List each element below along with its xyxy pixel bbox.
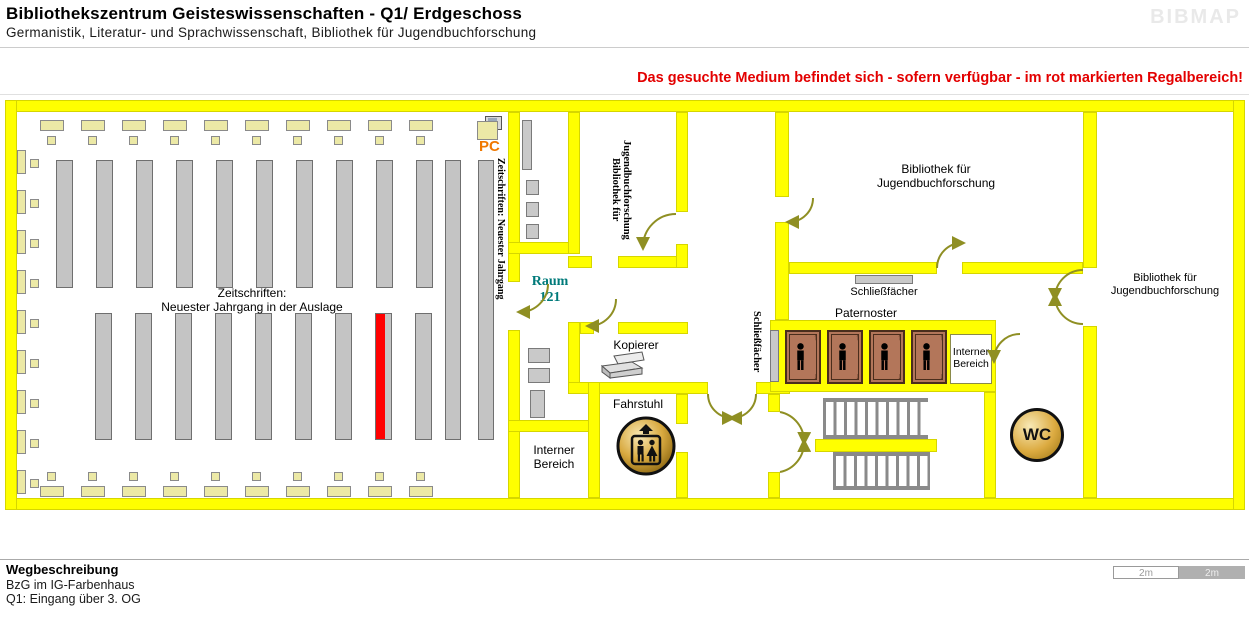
chair bbox=[30, 319, 39, 328]
interner-bereich-right-label: Interner Bereich bbox=[951, 346, 991, 370]
table bbox=[17, 310, 26, 334]
wall bbox=[789, 262, 937, 274]
locker bbox=[530, 390, 545, 418]
chair bbox=[88, 472, 97, 481]
label-line: Interner bbox=[953, 346, 989, 358]
bookshelf bbox=[56, 160, 73, 288]
table bbox=[17, 390, 26, 414]
down-arrow-icon: ↓ bbox=[856, 372, 861, 381]
bookshelf bbox=[215, 313, 232, 440]
wall-shelf bbox=[526, 202, 539, 217]
chair bbox=[334, 136, 343, 145]
schliessfaecher-label: Schließfächer bbox=[844, 286, 924, 299]
table bbox=[368, 486, 392, 497]
locker bbox=[528, 368, 550, 383]
table bbox=[17, 350, 26, 374]
wall bbox=[5, 100, 1245, 112]
table bbox=[122, 486, 146, 497]
table bbox=[17, 430, 26, 454]
chair bbox=[30, 399, 39, 408]
chair bbox=[129, 136, 138, 145]
table bbox=[286, 120, 310, 131]
footer-line-2: Q1: Eingang über 3. OG bbox=[6, 592, 141, 606]
room-jugendbuch-right-label: Bibliothek für Jugendbuchforschung bbox=[1100, 272, 1230, 298]
bookshelf bbox=[175, 313, 192, 440]
down-arrow-icon: ↓ bbox=[898, 372, 903, 381]
wall bbox=[768, 394, 780, 412]
stairs-landing bbox=[815, 439, 937, 452]
wc-label: WC bbox=[1023, 425, 1051, 445]
footer-divider bbox=[0, 559, 1249, 560]
door-arc bbox=[1055, 270, 1083, 298]
wall bbox=[676, 452, 688, 498]
wall-shelf bbox=[522, 120, 532, 170]
highlighted-shelf-marker bbox=[376, 314, 385, 439]
table bbox=[327, 486, 351, 497]
chair bbox=[30, 279, 39, 288]
person-icon bbox=[794, 337, 807, 377]
chair bbox=[170, 136, 179, 145]
wall bbox=[5, 100, 17, 510]
table bbox=[17, 270, 26, 294]
down-arrow-icon: ↓ bbox=[940, 372, 945, 381]
wall bbox=[676, 112, 688, 212]
label-line: Bereich bbox=[534, 457, 575, 471]
table bbox=[17, 470, 26, 494]
bookshelf bbox=[216, 160, 233, 288]
wall bbox=[1083, 326, 1097, 498]
schliessfaecher-vertical-label: Schließfächer bbox=[751, 296, 767, 388]
chair bbox=[30, 479, 39, 488]
wall bbox=[984, 392, 996, 498]
locker bbox=[528, 348, 550, 363]
chair bbox=[211, 472, 220, 481]
chair bbox=[375, 472, 384, 481]
copier-icon bbox=[598, 350, 646, 380]
floor-plan: Zeitschriften: Neuester Jahrgang in der … bbox=[0, 0, 1249, 618]
wall bbox=[568, 256, 592, 268]
chair bbox=[170, 472, 179, 481]
wc-icon: WC bbox=[1010, 408, 1064, 462]
pc-icon bbox=[477, 116, 503, 140]
bookshelf bbox=[478, 160, 494, 440]
room-jugendbuch-vertical-label: Bibliothek für Jugendbuchforschung bbox=[610, 120, 648, 260]
bookshelf bbox=[135, 313, 152, 440]
bookshelf bbox=[415, 313, 432, 440]
bookshelf bbox=[336, 160, 353, 288]
wall bbox=[618, 322, 688, 334]
chair bbox=[252, 472, 261, 481]
door-arc bbox=[780, 442, 804, 472]
table bbox=[17, 190, 26, 214]
schliessfaecher-lockers bbox=[855, 275, 913, 284]
paternoster-cabin: ↑↓ bbox=[785, 330, 821, 384]
elevator-icon bbox=[615, 415, 677, 477]
label-line: Jugendbuchforschung bbox=[1111, 285, 1219, 297]
bookshelf bbox=[255, 313, 272, 440]
chair bbox=[88, 136, 97, 145]
bookshelf bbox=[95, 313, 112, 440]
person-icon bbox=[878, 337, 891, 377]
up-arrow-icon: ↑ bbox=[898, 333, 903, 342]
label-line: Raum bbox=[532, 274, 569, 289]
table bbox=[327, 120, 351, 131]
scale-segment-light: 2m bbox=[1113, 566, 1179, 579]
wall bbox=[580, 322, 594, 334]
down-arrow-icon: ↓ bbox=[814, 372, 819, 381]
chair bbox=[30, 199, 39, 208]
note-line2: Neuester Jahrgang in der Auslage bbox=[161, 300, 342, 314]
label-line: 121 bbox=[540, 290, 561, 305]
wall bbox=[676, 244, 688, 268]
chair bbox=[129, 472, 138, 481]
chair bbox=[293, 136, 302, 145]
wall bbox=[568, 112, 580, 254]
note-line1: Zeitschriften: bbox=[218, 286, 287, 300]
label-line: Bibliothek für bbox=[1133, 272, 1197, 284]
chair bbox=[416, 136, 425, 145]
fahrstuhl-label: Fahrstuhl bbox=[596, 397, 680, 411]
paternoster-cabin: ↑↓ bbox=[911, 330, 947, 384]
label-line: Jugendbuchforschung bbox=[877, 176, 995, 190]
bookshelf bbox=[376, 160, 393, 288]
label-line: Interner bbox=[533, 443, 574, 457]
chair bbox=[211, 136, 220, 145]
bookshelf bbox=[136, 160, 153, 288]
table bbox=[409, 120, 433, 131]
door-arc bbox=[732, 394, 756, 418]
table bbox=[204, 486, 228, 497]
table bbox=[286, 486, 310, 497]
stairs-lower-flight bbox=[833, 452, 930, 490]
door-arc bbox=[994, 334, 1020, 360]
chair bbox=[293, 472, 302, 481]
up-arrow-icon: ↑ bbox=[856, 333, 861, 342]
wall bbox=[768, 472, 780, 498]
bookshelf bbox=[256, 160, 273, 288]
wall bbox=[1083, 112, 1097, 268]
wall-shelf bbox=[526, 224, 539, 239]
table bbox=[163, 486, 187, 497]
door-arc bbox=[937, 243, 962, 268]
locker bbox=[770, 330, 779, 382]
table bbox=[122, 120, 146, 131]
table bbox=[17, 230, 26, 254]
table bbox=[204, 120, 228, 131]
wall bbox=[1233, 100, 1245, 510]
door-arc bbox=[1055, 296, 1083, 324]
bookshelf bbox=[445, 160, 461, 440]
paternoster-cabin: ↑↓ bbox=[827, 330, 863, 384]
chair bbox=[252, 136, 261, 145]
bookshelf bbox=[295, 313, 312, 440]
paternoster-label: Paternoster bbox=[810, 306, 922, 320]
table bbox=[245, 120, 269, 131]
table bbox=[40, 486, 64, 497]
reading-room-note: Zeitschriften: Neuester Jahrgang in der … bbox=[152, 286, 352, 314]
chair bbox=[416, 472, 425, 481]
door-arc bbox=[708, 394, 732, 418]
footer-heading: Wegbeschreibung bbox=[6, 562, 118, 577]
bookshelf bbox=[176, 160, 193, 288]
chair bbox=[375, 136, 384, 145]
person-icon bbox=[836, 337, 849, 377]
stairs-upper-flight bbox=[823, 398, 928, 439]
wall bbox=[508, 420, 600, 432]
interner-bereich-left-label: Interner Bereich bbox=[514, 443, 594, 471]
chair bbox=[30, 359, 39, 368]
paternoster-cabin: ↑↓ bbox=[869, 330, 905, 384]
zeitschriften-side-label: Zeitschriften: Neuester Jahrgang bbox=[495, 138, 511, 320]
scale-bar: 2m 2m bbox=[1113, 566, 1245, 579]
pc-label: PC bbox=[479, 138, 500, 155]
door-arc bbox=[789, 198, 813, 222]
table bbox=[81, 120, 105, 131]
bookshelf bbox=[416, 160, 433, 288]
wall-shelf bbox=[526, 180, 539, 195]
up-arrow-icon: ↑ bbox=[814, 333, 819, 342]
label-line: Bibliothek für bbox=[610, 120, 621, 260]
person-icon bbox=[920, 337, 933, 377]
table bbox=[409, 486, 433, 497]
label-line: Jugendbuchforschung bbox=[621, 120, 632, 260]
wall bbox=[508, 330, 520, 498]
wall bbox=[775, 112, 789, 197]
chair bbox=[30, 159, 39, 168]
table bbox=[17, 150, 26, 174]
interner-bereich-right-box: Interner Bereich bbox=[950, 334, 992, 384]
room-121-label: Raum 121 bbox=[522, 274, 578, 306]
table bbox=[163, 120, 187, 131]
bookshelf bbox=[335, 313, 352, 440]
label-line: Bibliothek für bbox=[901, 162, 970, 176]
room-jugendbuch-top-label: Bibliothek für Jugendbuchforschung bbox=[856, 162, 1016, 190]
footer-line-1: BzG im IG-Farbenhaus bbox=[6, 578, 135, 592]
scale-segment-dark: 2m bbox=[1179, 566, 1245, 579]
table bbox=[81, 486, 105, 497]
bibmap-floor-plan-page: Bibliothekszentrum Geisteswissenschaften… bbox=[0, 0, 1249, 618]
wall bbox=[775, 222, 789, 320]
chair bbox=[47, 472, 56, 481]
table bbox=[40, 120, 64, 131]
chair bbox=[30, 439, 39, 448]
table bbox=[245, 486, 269, 497]
door-arc bbox=[780, 412, 804, 442]
table bbox=[368, 120, 392, 131]
chair bbox=[30, 239, 39, 248]
wall bbox=[5, 498, 1245, 510]
up-arrow-icon: ↑ bbox=[940, 333, 945, 342]
label-line: Bereich bbox=[953, 358, 989, 370]
chair bbox=[334, 472, 343, 481]
bookshelf bbox=[96, 160, 113, 288]
chair bbox=[47, 136, 56, 145]
wall bbox=[962, 262, 1083, 274]
bookshelf bbox=[296, 160, 313, 288]
